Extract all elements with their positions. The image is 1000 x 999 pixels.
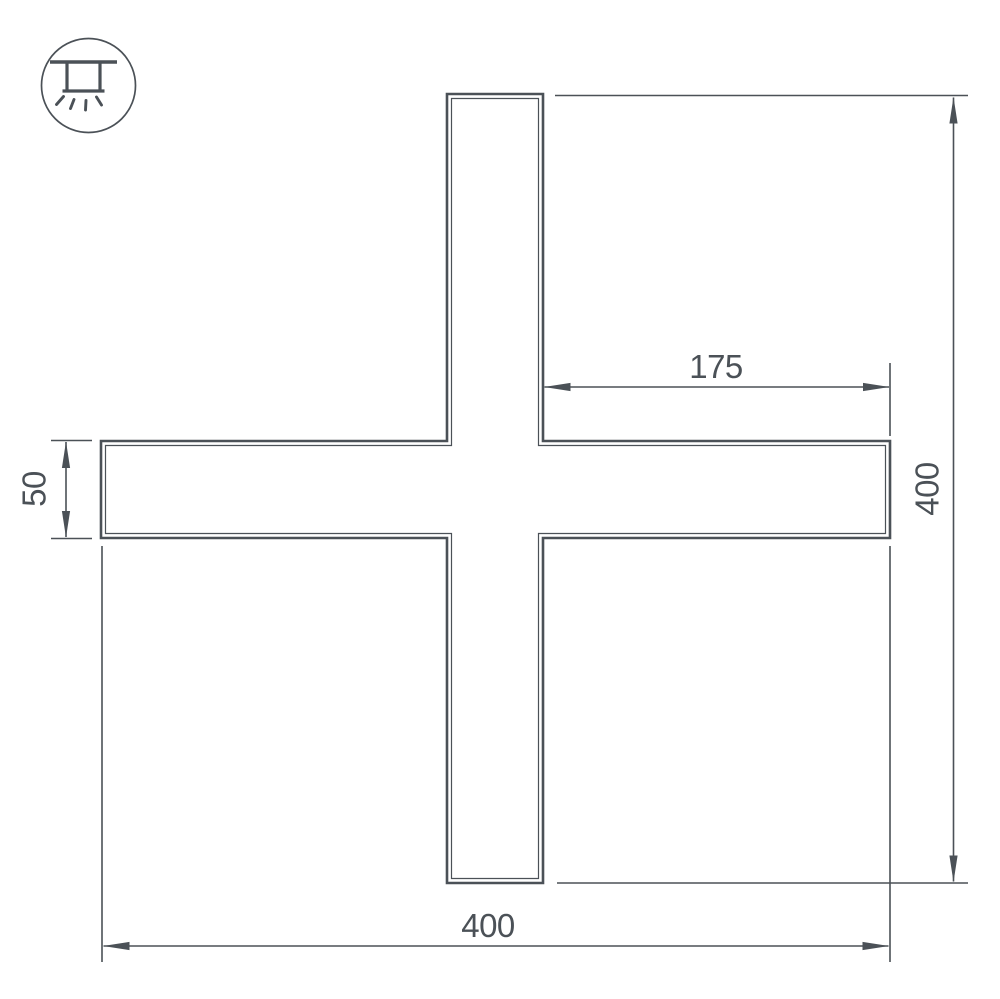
icon-circle <box>42 39 136 133</box>
technical-drawing: 175 400 50 400 <box>0 0 1000 999</box>
dimension-label-profile-width: 50 <box>16 471 53 507</box>
drawing-canvas: 175 400 50 400 <box>0 0 1000 999</box>
dimension-label-overall-width: 400 <box>461 907 515 944</box>
dimension-profile-width: 50 <box>16 441 93 539</box>
dimension-overall-height: 400 <box>555 96 968 884</box>
cross-outer-contour <box>101 94 890 883</box>
dimension-overall-width: 400 <box>102 546 890 962</box>
dimension-label-arm-length: 175 <box>689 348 743 385</box>
profile-cross-outline <box>101 94 890 883</box>
cross-inner-contour <box>106 99 886 879</box>
icon-light-rays <box>57 97 102 111</box>
dimension-label-overall-height: 400 <box>909 462 946 516</box>
dimension-arm-length: 175 <box>545 348 891 436</box>
recessed-light-icon <box>42 39 136 133</box>
